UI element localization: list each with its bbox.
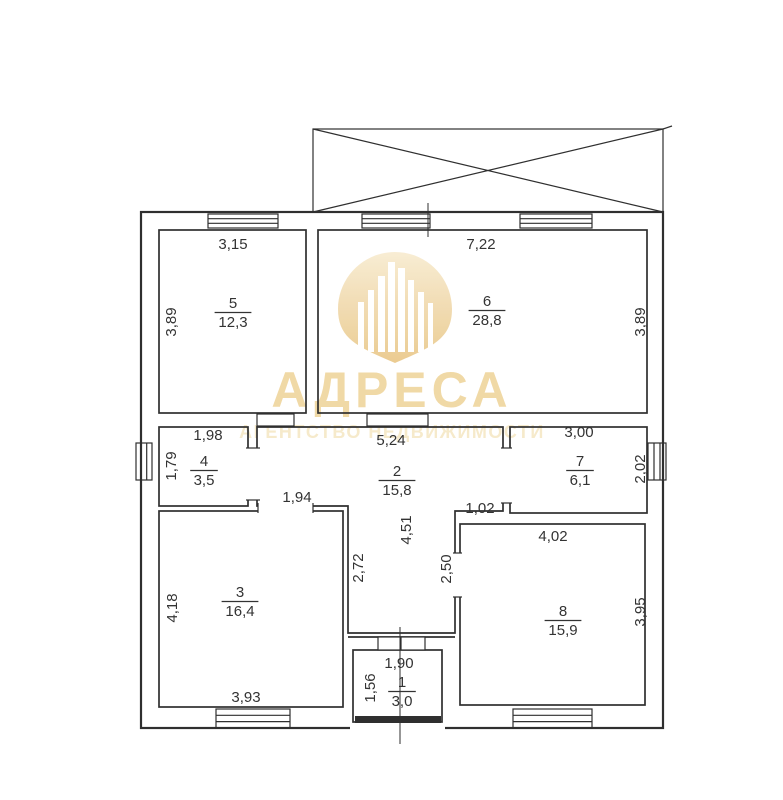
window-bottom-right (513, 709, 592, 728)
dimension-label: 4,02 (538, 528, 567, 545)
room-area: 12,3 (218, 314, 247, 331)
room-area: 3,0 (392, 693, 413, 710)
window-bottom-left (216, 709, 290, 728)
floorplan-drawing: АДРЕСА АГЕНТСТВО НЕДВИЖИМОСТИ (0, 0, 783, 800)
room-number: 3 (236, 584, 244, 601)
room-number: 7 (576, 453, 584, 470)
dimension-label: 4,51 (398, 515, 415, 544)
room-label-4: 43,5 (190, 453, 218, 489)
dimension-label: 3,89 (163, 307, 180, 336)
room-area: 6,1 (570, 472, 591, 489)
door-room4-gap (246, 448, 260, 500)
door-room5 (257, 414, 294, 426)
room-number: 4 (200, 453, 208, 470)
window-top-left (208, 214, 278, 228)
watermark-brand: АДРЕСА (271, 362, 512, 418)
dimension-label: 1,98 (193, 427, 222, 444)
dimension-label: 3,00 (564, 424, 593, 441)
dimension-label: 1,02 (465, 500, 494, 517)
dimension-label: 1,79 (163, 451, 180, 480)
dimension-label: 3,15 (218, 236, 247, 253)
dimension-label: 1,94 (282, 489, 311, 506)
room-label-6: 628,8 (469, 293, 506, 329)
window-top-middle (362, 214, 430, 228)
door-openings (246, 414, 512, 650)
room-number: 8 (559, 603, 567, 620)
room-label-1: 13,0 (388, 674, 416, 710)
room-label-8: 815,9 (545, 603, 582, 639)
room-2-hall-walls (257, 427, 503, 633)
room-number: 6 (483, 293, 491, 310)
room-number: 5 (229, 295, 237, 312)
room-area: 28,8 (472, 312, 501, 329)
room-area: 15,8 (382, 482, 411, 499)
dimension-label: 1,90 (384, 655, 413, 672)
room-area: 16,4 (225, 603, 254, 620)
dimension-label: 1,56 (362, 673, 379, 702)
dimension-label: 7,22 (466, 236, 495, 253)
dimension-label: 3,89 (632, 307, 649, 336)
dimension-label: 2,02 (632, 454, 649, 483)
dimension-label: 2,50 (438, 554, 455, 583)
dimension-label: 3,93 (231, 689, 260, 706)
window-top-right (520, 214, 592, 228)
door-room6 (367, 414, 428, 426)
window-left (136, 443, 152, 480)
dimension-label: 3,95 (632, 597, 649, 626)
dimension-label: 2,72 (350, 553, 367, 582)
entrance-threshold (355, 716, 441, 723)
door-room7-gap (501, 448, 512, 503)
room-8-walls (460, 524, 645, 705)
room-label-5: 512,3 (215, 295, 252, 331)
room-label-2: 215,8 (379, 463, 416, 499)
room-area: 15,9 (548, 622, 577, 639)
dimension-label: 4,18 (164, 593, 181, 622)
wall-gap-entrance (350, 724, 445, 736)
room-number: 2 (393, 463, 401, 480)
dimension-label: 5,24 (376, 432, 405, 449)
room-label-7: 76,1 (566, 453, 594, 489)
room-area: 3,5 (194, 472, 215, 489)
terrace-corner-tick (663, 126, 672, 129)
room-label-3: 316,4 (222, 584, 259, 620)
terrace (313, 126, 672, 212)
room-number: 1 (398, 674, 406, 691)
floorplan-canvas: АДРЕСА АГЕНТСТВО НЕДВИЖИМОСТИ (0, 0, 783, 800)
